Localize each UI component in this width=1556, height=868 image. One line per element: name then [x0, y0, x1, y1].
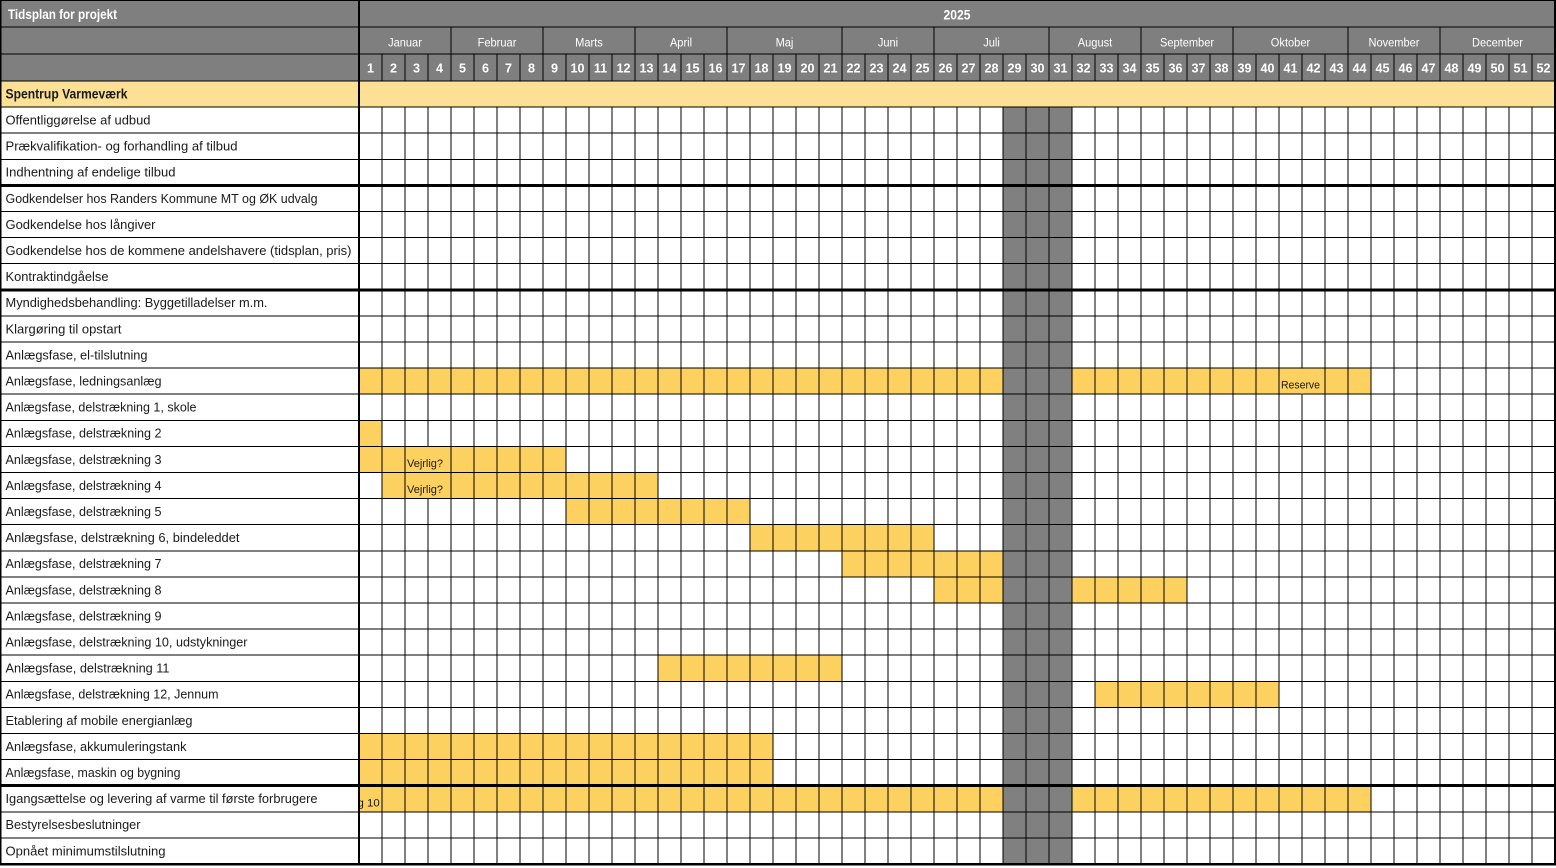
svg-text:Opnået minimumstilslutning: Opnået minimumstilslutning	[6, 843, 166, 858]
svg-text:Januar: Januar	[388, 36, 422, 50]
svg-text:38: 38	[1214, 62, 1228, 76]
svg-text:18: 18	[754, 62, 768, 76]
svg-text:Tidsplan for projekt: Tidsplan for projekt	[8, 7, 117, 22]
svg-text:22: 22	[846, 62, 860, 76]
svg-text:45: 45	[1375, 62, 1389, 76]
svg-text:52: 52	[1536, 62, 1550, 76]
svg-text:48: 48	[1444, 62, 1458, 76]
svg-text:Juli: Juli	[983, 36, 1000, 50]
svg-text:11: 11	[594, 62, 607, 76]
svg-text:Anlægsfase, delstrækning 1, sk: Anlægsfase, delstrækning 1, skole	[6, 400, 197, 415]
svg-text:Anlægsfase, delstrækning 11: Anlægsfase, delstrækning 11	[6, 661, 170, 676]
svg-text:3: 3	[413, 62, 420, 76]
svg-text:1: 1	[367, 62, 374, 76]
svg-text:33: 33	[1099, 62, 1113, 76]
svg-text:16: 16	[708, 62, 722, 76]
svg-text:Anlægsfase, el-tilslutning: Anlægsfase, el-tilslutning	[6, 347, 148, 362]
svg-text:5: 5	[459, 62, 466, 76]
svg-text:Reserve: Reserve	[1281, 380, 1320, 392]
svg-text:20: 20	[800, 62, 814, 76]
svg-text:Anlægsfase, akkumuleringstank: Anlægsfase, akkumuleringstank	[6, 739, 187, 754]
svg-text:Indhentning af endelige tilbud: Indhentning af endelige tilbud	[6, 165, 176, 180]
svg-text:44: 44	[1352, 62, 1366, 76]
svg-text:49: 49	[1467, 62, 1481, 76]
svg-text:Godkendelse hos långiver: Godkendelse hos långiver	[6, 217, 157, 232]
svg-text:28: 28	[984, 62, 998, 76]
svg-text:Marts: Marts	[575, 36, 603, 50]
svg-text:31: 31	[1053, 62, 1067, 76]
svg-text:Februar: Februar	[478, 36, 517, 50]
svg-text:27: 27	[961, 62, 975, 76]
svg-text:April: April	[670, 36, 692, 50]
svg-text:42: 42	[1306, 62, 1320, 76]
svg-text:Myndighedsbehandling: Byggetil: Myndighedsbehandling: Byggetilladelser m…	[6, 295, 268, 310]
svg-text:Anlægsfase, delstrækning 5: Anlægsfase, delstrækning 5	[6, 504, 162, 519]
svg-text:7: 7	[505, 62, 512, 76]
svg-text:50: 50	[1490, 62, 1504, 76]
svg-text:Igangsættelse og levering af v: Igangsættelse og levering af varme til f…	[6, 791, 318, 806]
svg-text:Anlægsfase, ledningsanlæg: Anlægsfase, ledningsanlæg	[6, 374, 162, 389]
svg-text:Prækvalifikation- og forhandli: Prækvalifikation- og forhandling af tilb…	[6, 139, 238, 154]
svg-text:14: 14	[662, 62, 676, 76]
svg-text:Oktober: Oktober	[1271, 36, 1310, 50]
svg-text:2: 2	[390, 62, 397, 76]
svg-text:19: 19	[777, 62, 791, 76]
svg-text:Anlægsfase, delstrækning 9: Anlægsfase, delstrækning 9	[6, 608, 162, 623]
svg-text:36: 36	[1168, 62, 1182, 76]
svg-text:August: August	[1078, 36, 1113, 50]
svg-text:24: 24	[892, 62, 906, 76]
svg-text:34: 34	[1122, 62, 1136, 76]
svg-text:9: 9	[551, 62, 558, 76]
svg-text:Godkendelser hos Randers Kommu: Godkendelser hos Randers Kommune MT og Ø…	[6, 191, 318, 206]
svg-text:Anlægsfase, maskin og bygning: Anlægsfase, maskin og bygning	[6, 765, 181, 780]
svg-text:Etablering af mobile energianl: Etablering af mobile energianlæg	[6, 713, 193, 728]
svg-text:Godkendelse hos de kommene and: Godkendelse hos de kommene andelshavere …	[6, 243, 352, 258]
svg-text:Anlægsfase, delstrækning 10, u: Anlægsfase, delstrækning 10, udstykninge…	[6, 635, 249, 650]
svg-text:Spentrup Varmeværk: Spentrup Varmeværk	[6, 86, 128, 101]
svg-text:Kontraktindgåelse: Kontraktindgåelse	[6, 269, 109, 284]
svg-text:6: 6	[482, 62, 489, 76]
svg-text:46: 46	[1398, 62, 1412, 76]
svg-text:23: 23	[869, 62, 883, 76]
svg-text:Vejrlig?: Vejrlig?	[407, 458, 443, 470]
svg-text:Anlægsfase, delstrækning 8: Anlægsfase, delstrækning 8	[6, 582, 162, 597]
svg-text:Anlægsfase, delstrækning 2: Anlægsfase, delstrækning 2	[6, 426, 162, 441]
svg-text:September: September	[1160, 36, 1214, 50]
svg-text:November: November	[1369, 36, 1420, 50]
svg-text:Juni: Juni	[878, 36, 898, 50]
svg-text:29: 29	[1007, 62, 1021, 76]
svg-text:Anlægsfase, delstrækning 3: Anlægsfase, delstrækning 3	[6, 452, 162, 467]
svg-text:Anlægsfase, delstrækning 4: Anlægsfase, delstrækning 4	[6, 478, 162, 493]
svg-text:12: 12	[616, 62, 630, 76]
svg-text:51: 51	[1513, 62, 1527, 76]
svg-text:26: 26	[938, 62, 952, 76]
svg-text:32: 32	[1076, 62, 1090, 76]
svg-text:35: 35	[1145, 62, 1159, 76]
svg-text:40: 40	[1260, 62, 1274, 76]
svg-text:21: 21	[823, 62, 837, 76]
svg-text:41: 41	[1283, 62, 1297, 76]
svg-text:Offentliggørelse af udbud: Offentliggørelse af udbud	[6, 113, 151, 128]
svg-text:Anlægsfase, delstrækning 6, bi: Anlægsfase, delstrækning 6, bindeleddet	[6, 530, 240, 545]
svg-text:g 10: g 10	[358, 798, 380, 810]
svg-text:Anlægsfase, delstrækning 12, J: Anlægsfase, delstrækning 12, Jennum	[6, 687, 219, 702]
svg-text:39: 39	[1237, 62, 1251, 76]
svg-text:15: 15	[685, 62, 699, 76]
svg-text:Klargøring til opstart: Klargøring til opstart	[6, 321, 122, 336]
svg-text:13: 13	[639, 62, 653, 76]
svg-text:25: 25	[915, 62, 929, 76]
svg-text:Anlægsfase, delstrækning 7: Anlægsfase, delstrækning 7	[6, 556, 162, 571]
svg-text:Bestyrelsesbeslutninger: Bestyrelsesbeslutninger	[6, 817, 142, 832]
svg-text:43: 43	[1329, 62, 1343, 76]
svg-text:Maj: Maj	[776, 36, 794, 50]
svg-text:2025: 2025	[944, 8, 971, 23]
svg-text:47: 47	[1421, 62, 1435, 76]
svg-text:Vejrlig?: Vejrlig?	[407, 484, 443, 496]
svg-text:17: 17	[731, 62, 745, 76]
svg-text:8: 8	[528, 62, 535, 76]
svg-text:37: 37	[1191, 62, 1205, 76]
svg-text:30: 30	[1030, 62, 1044, 76]
svg-text:December: December	[1472, 36, 1523, 50]
svg-text:4: 4	[436, 62, 443, 76]
svg-text:10: 10	[570, 62, 584, 76]
